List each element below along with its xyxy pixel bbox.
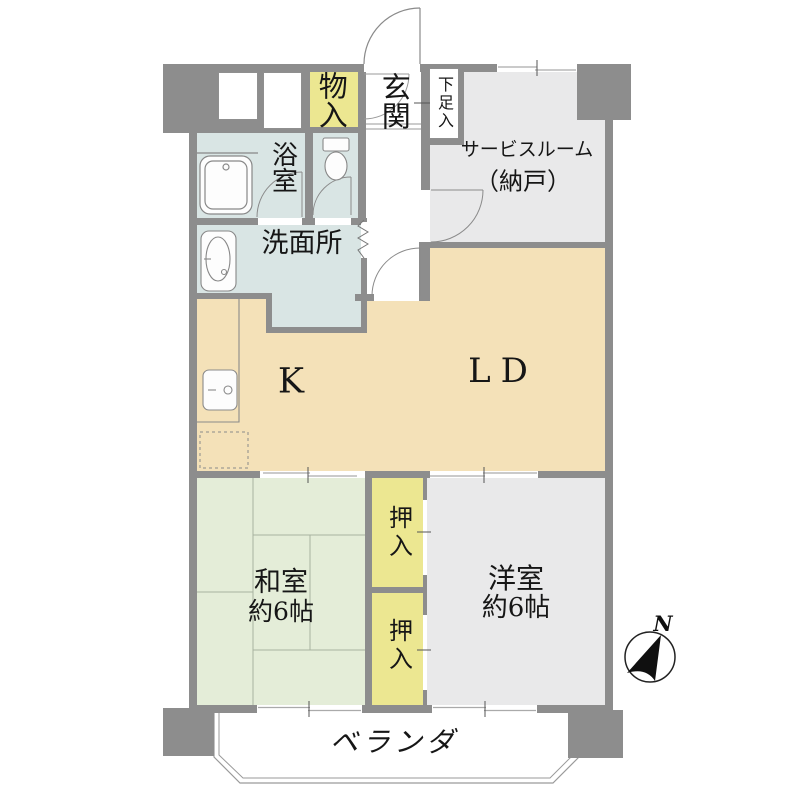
entrance-door-arc: [364, 8, 420, 64]
label-veranda: ベランダ: [330, 726, 458, 757]
label-service-room-name: サービスルーム: [461, 139, 593, 160]
label-service-room-sub: （納戸）: [475, 169, 571, 196]
bathtub-icon: [197, 153, 258, 214]
label-closet-upper: 押入: [385, 505, 412, 561]
label-western-room: 洋室 約6帖: [482, 563, 551, 623]
compass-icon: N: [625, 611, 675, 682]
compass-north-label: N: [652, 611, 673, 636]
washbasin-icon: [201, 231, 236, 291]
refrigerator-outline: [200, 432, 248, 468]
label-living-dining: LD: [468, 352, 538, 390]
label-closet-lower: 押入: [385, 618, 412, 674]
label-japanese-room: 和室 約6帖: [248, 568, 314, 626]
toilet-icon: [323, 138, 349, 180]
label-western-room-size: 約6帖: [482, 594, 551, 623]
label-western-room-name: 洋室: [482, 563, 551, 594]
label-shoe-cabinet: 下足入: [435, 76, 453, 130]
label-bathroom: 浴室: [267, 141, 296, 193]
label-japanese-room-size: 約6帖: [248, 598, 314, 626]
service-room-door-arc: [431, 190, 483, 242]
accordion-door-icon: [358, 220, 368, 258]
hallway-door-arc: [372, 248, 420, 296]
toilet-door-arc: [313, 177, 351, 215]
floor-plan: N 物入 玄関 下足入 浴室 洗面所 サービスルーム （納戸） K LD 和室 …: [0, 0, 800, 800]
kitchen-sink-icon: [197, 299, 239, 422]
label-storage-top: 物入: [315, 71, 347, 129]
label-japanese-room-name: 和室: [248, 568, 314, 598]
label-entrance: 玄関: [378, 72, 410, 130]
label-washroom: 洗面所: [262, 229, 343, 259]
label-kitchen: K: [278, 362, 304, 401]
